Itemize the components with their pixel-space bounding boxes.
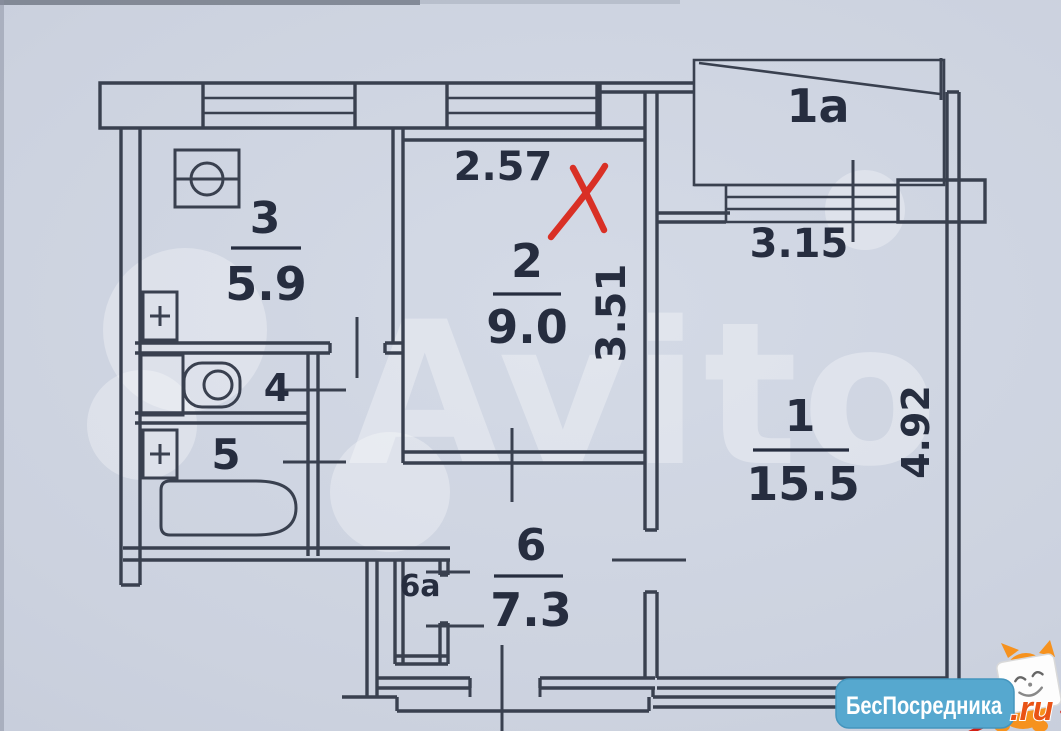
hallway-number: 6	[516, 520, 547, 571]
room-1-depth-dim: 4.92	[894, 385, 938, 479]
room-3-area: 5.9	[225, 257, 307, 311]
badge-site-name: БесПосредника	[846, 692, 1003, 720]
room-1-area: 15.5	[746, 457, 860, 511]
stove-icon	[175, 150, 239, 207]
room-1-number: 1	[785, 391, 816, 442]
closet-number: 6a	[399, 569, 440, 604]
room-2-number: 2	[511, 234, 543, 288]
room-3-number: 3	[250, 193, 281, 244]
room-2-area: 9.0	[486, 300, 568, 354]
photo-edge-left	[0, 0, 4, 731]
kitchen-window	[203, 98, 355, 113]
floor-plan-svg: Avito	[0, 0, 1061, 731]
balcony-number: 1a	[786, 79, 849, 133]
bathroom-number: 5	[211, 430, 240, 479]
photo-edge-top-fade	[420, 0, 680, 4]
hallway-area: 7.3	[490, 583, 572, 637]
balcony-window-dim: 3.15	[750, 221, 849, 267]
room-2-depth-dim: 3.51	[589, 264, 635, 363]
floor-plan-photo: Avito	[0, 0, 1061, 731]
bathtub-icon	[161, 481, 296, 535]
badge-site-suffix: .ru	[1010, 690, 1054, 728]
photo-edge-top	[0, 0, 420, 5]
wc-number: 4	[264, 366, 290, 410]
red-x-mark	[551, 166, 605, 237]
room-2-width-dim: 2.57	[454, 144, 553, 190]
room2-window	[447, 98, 597, 113]
